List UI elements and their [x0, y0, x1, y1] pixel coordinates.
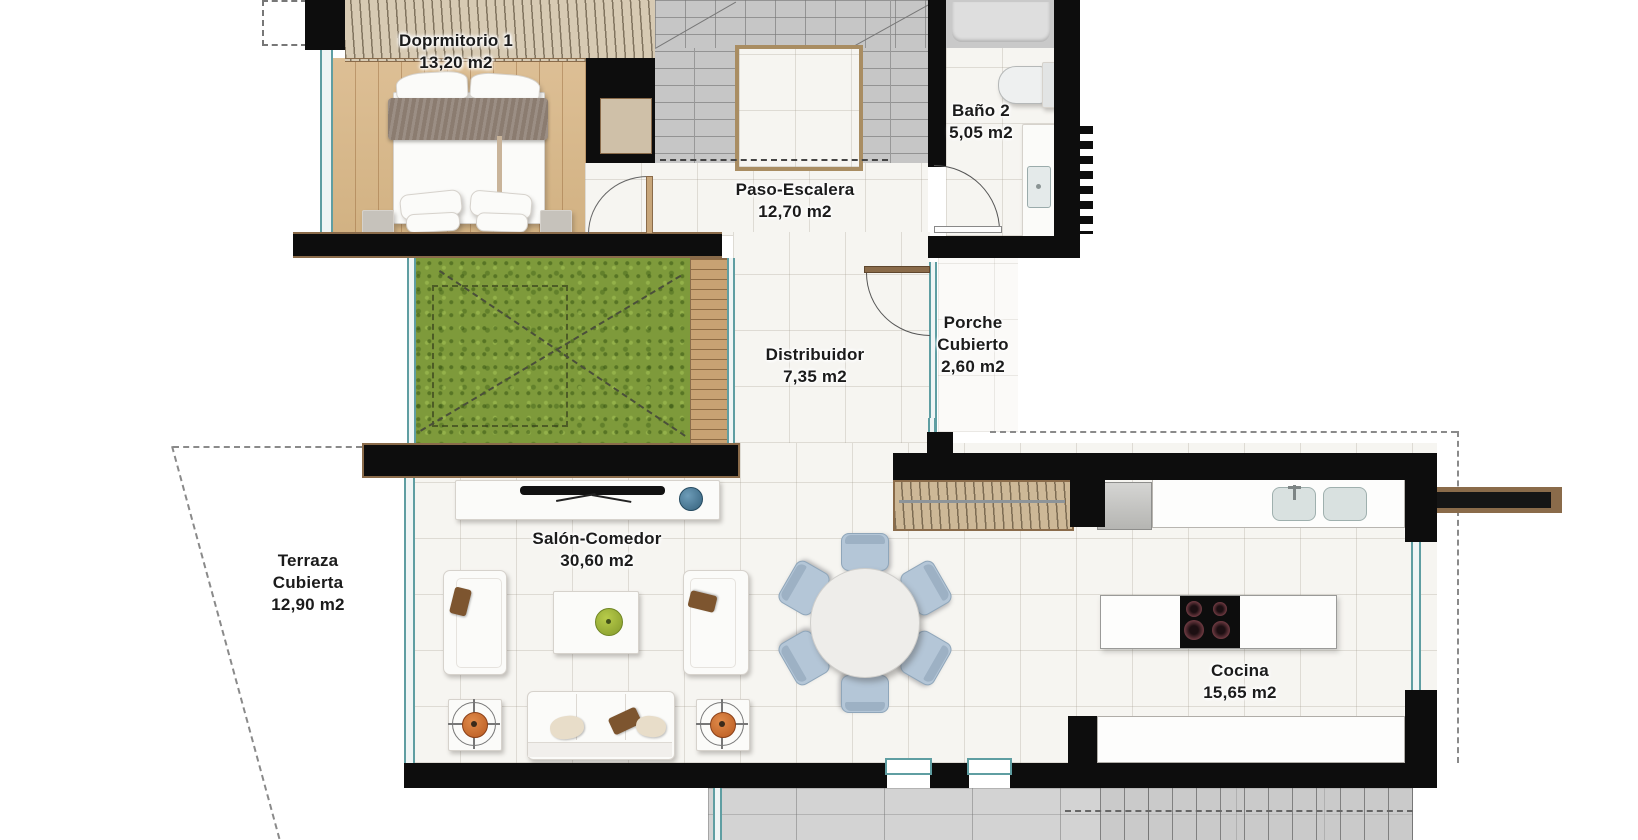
- wall: [1070, 480, 1105, 527]
- room-name: Paso-Escalera: [736, 179, 855, 201]
- room-area: 2,60 m2: [937, 356, 1008, 378]
- faucet-spout: [1288, 486, 1301, 489]
- party-wall-teeth: [1080, 126, 1093, 234]
- wall: [1054, 0, 1080, 236]
- chair-back: [845, 535, 885, 544]
- bedroom-window: [320, 50, 333, 232]
- room-label-distribuidor: Distribuidor 7,35 m2: [766, 344, 865, 388]
- pillow: [476, 212, 529, 233]
- exterior-dashed-line: [1065, 810, 1413, 812]
- burner: [1186, 601, 1202, 617]
- room-area: 15,65 m2: [1203, 682, 1276, 704]
- wall: [928, 236, 1080, 258]
- room-label-cocina: Cocina 15,65 m2: [1203, 660, 1276, 704]
- wall: [305, 0, 345, 50]
- boundary-dashed-north: [990, 431, 1457, 433]
- wall: [893, 453, 1437, 480]
- room-area: 12,90 m2: [271, 594, 344, 616]
- bathroom-door-leaf: [934, 226, 1002, 233]
- dining-chair: [841, 675, 889, 713]
- patio-window-east: [727, 258, 735, 443]
- wall: [927, 432, 953, 455]
- kitchen-appliance: [1097, 482, 1152, 530]
- wall: [928, 0, 946, 167]
- rear-window: [967, 758, 1012, 775]
- burner: [1212, 621, 1230, 639]
- patio-deck: [690, 258, 729, 445]
- patio-window-west: [407, 258, 416, 443]
- room-name: Baño 2: [949, 100, 1013, 122]
- kitchen-window: [1411, 542, 1421, 690]
- closet-rail: [899, 500, 1065, 503]
- room-label-dormitorio: Doprmitorio 1 13,20 m2: [399, 30, 513, 74]
- wall-niche: [600, 98, 652, 154]
- corridor-floor: [733, 232, 930, 443]
- floor-plan: Doprmitorio 1 13,20 m2 Baño 2 5,05 m2 Pa…: [0, 0, 1638, 840]
- room-name: Terraza: [271, 550, 344, 572]
- shower-tray-inner: [952, 2, 1050, 42]
- room-name: Doprmitorio 1: [399, 30, 513, 52]
- stair-divider-left: [694, 48, 695, 163]
- room-name: Cubierta: [271, 572, 344, 594]
- rear-opening: [887, 775, 930, 788]
- room-name: Salón-Comedor: [532, 528, 661, 550]
- boundary-dashed-top: [173, 446, 362, 448]
- room-name: Distribuidor: [766, 344, 865, 366]
- kitchen-sink: [1323, 487, 1367, 521]
- burner: [1213, 602, 1227, 616]
- rear-opening: [969, 775, 1010, 788]
- wall: [362, 443, 740, 478]
- entry-door-leaf: [864, 266, 930, 273]
- plant-center: [719, 721, 725, 727]
- room-name: Cubierto: [937, 334, 1008, 356]
- room-name: Cocina: [1203, 660, 1276, 682]
- room-label-porche: Porche Cubierto 2,60 m2: [937, 312, 1008, 378]
- bed-blanket: [388, 98, 548, 140]
- hall-closet: [893, 480, 1074, 531]
- boundary-dashed-slant: [171, 446, 280, 839]
- room-label-terraza: Terraza Cubierta 12,90 m2: [271, 550, 344, 616]
- boundary-dashed-east: [1457, 431, 1459, 763]
- stair-dashed-line: [660, 159, 888, 161]
- pillow: [406, 212, 461, 234]
- boundary-box: [262, 0, 307, 46]
- wall: [1405, 480, 1437, 542]
- room-name: Porche: [937, 312, 1008, 334]
- rear-window: [885, 758, 932, 775]
- sink-drain: [1036, 184, 1041, 189]
- apple-stem: [606, 619, 611, 624]
- sofa-backrest: [528, 742, 672, 757]
- room-area: 5,05 m2: [949, 122, 1013, 144]
- burner: [1184, 620, 1204, 640]
- room-area: 7,35 m2: [766, 366, 865, 388]
- chair-back: [845, 702, 885, 711]
- toilet: [998, 66, 1046, 104]
- wall: [293, 232, 722, 258]
- pergola-slats: [1100, 788, 1413, 840]
- exterior-beam-core: [1437, 492, 1551, 508]
- living-room-window: [404, 478, 415, 763]
- plant-center: [471, 721, 477, 727]
- decor-bowl: [679, 487, 703, 511]
- room-label-paso-escalera: Paso-Escalera 12,70 m2: [736, 179, 855, 223]
- room-label-salon: Salón-Comedor 30,60 m2: [532, 528, 661, 572]
- wall: [1068, 716, 1097, 763]
- dining-chair: [841, 533, 889, 571]
- entry-sidelight-window: [929, 262, 937, 432]
- dining-table: [810, 568, 920, 678]
- room-label-bano2: Baño 2 5,05 m2: [949, 100, 1013, 144]
- room-area: 13,20 m2: [399, 52, 513, 74]
- exterior-post: [713, 788, 722, 840]
- room-area: 12,70 m2: [736, 201, 855, 223]
- stairwell-void: [735, 45, 863, 171]
- kitchen-counter-bottom: [1097, 716, 1405, 763]
- bedroom-door-leaf: [646, 176, 653, 234]
- room-area: 30,60 m2: [532, 550, 661, 572]
